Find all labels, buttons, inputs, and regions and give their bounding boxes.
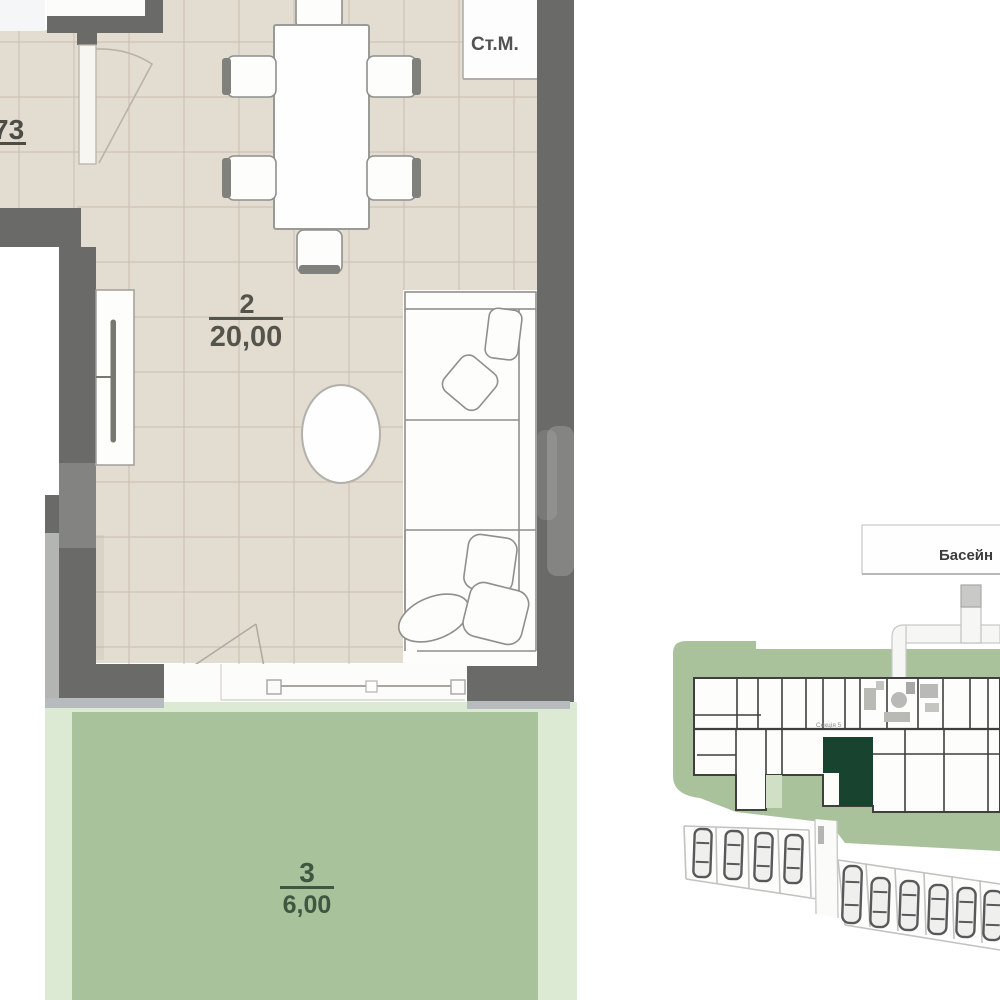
svg-text:20,00: 20,00: [210, 321, 283, 353]
svg-text:Ст.М.: Ст.М.: [471, 34, 519, 55]
svg-text:6,00: 6,00: [283, 891, 332, 919]
svg-text:Басейн: Басейн: [939, 547, 993, 564]
svg-text:73: 73: [0, 114, 24, 145]
svg-text:Секція 5: Секція 5: [816, 721, 842, 729]
svg-text:3: 3: [299, 857, 315, 888]
svg-text:2: 2: [239, 289, 254, 319]
